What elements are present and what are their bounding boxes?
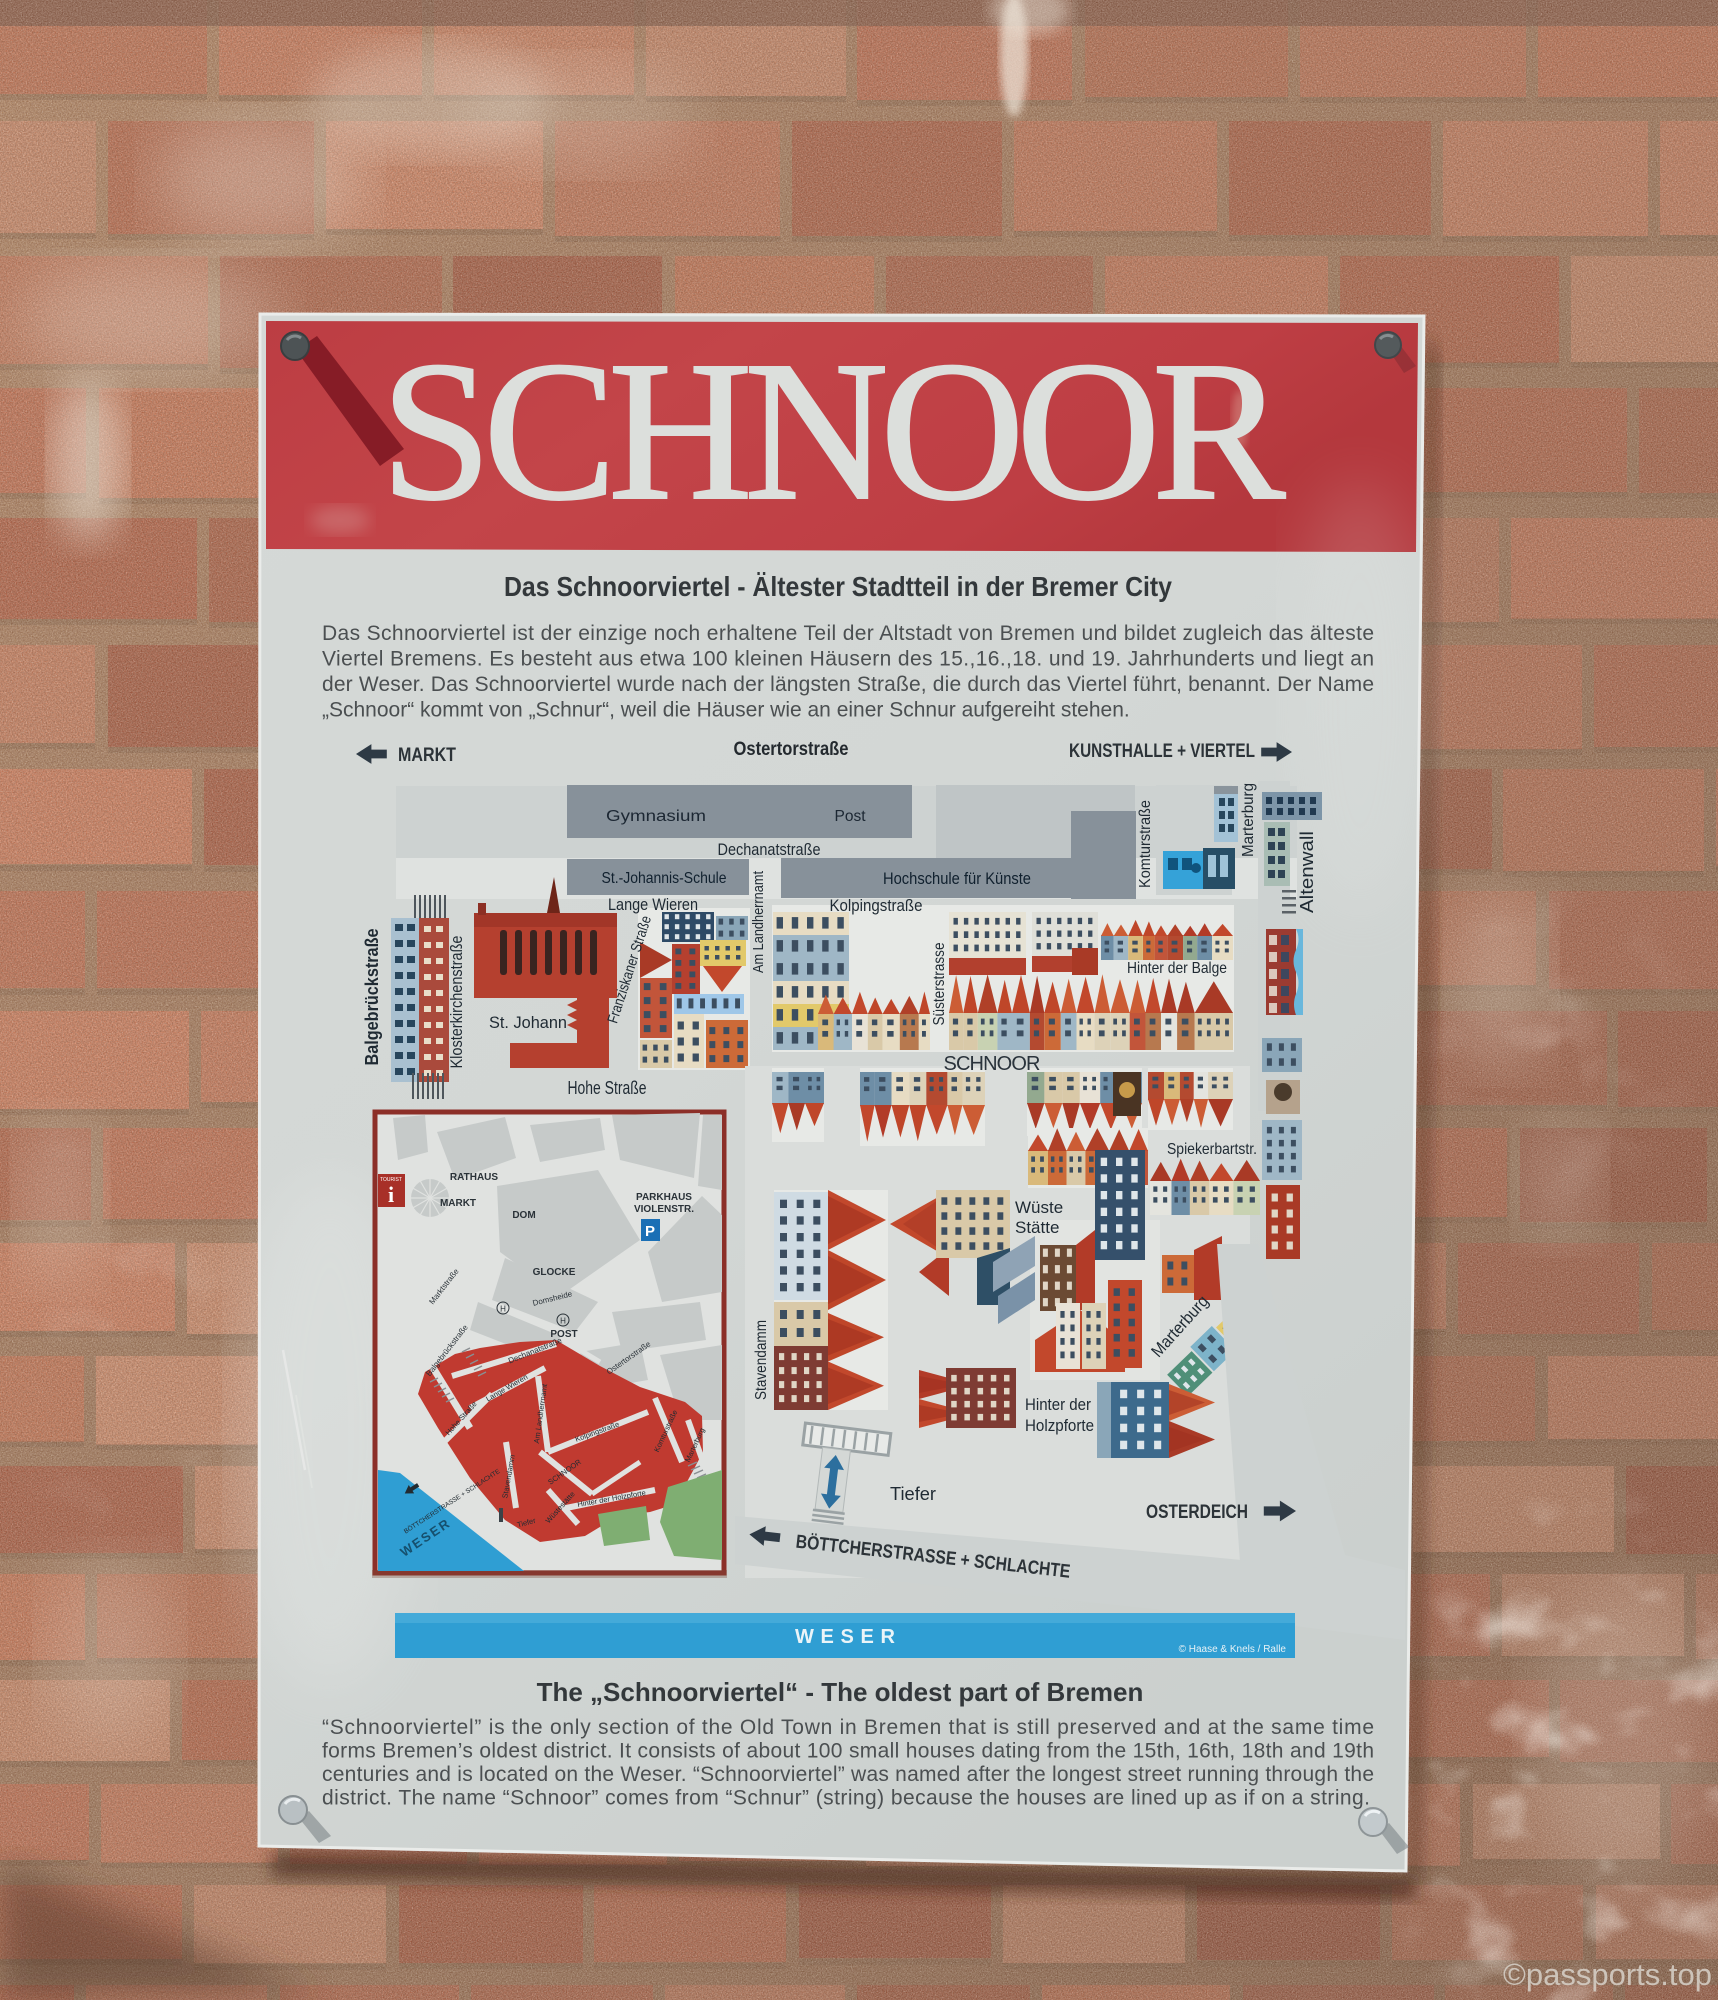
svg-text:DOM: DOM	[512, 1210, 535, 1221]
svg-text:Viertel Bremens. Es besteht au: Viertel Bremens. Es besteht aus etwa 100…	[322, 648, 1374, 671]
svg-text:Wüste: Wüste	[1015, 1198, 1063, 1217]
svg-text:Stavendamm: Stavendamm	[753, 1320, 770, 1400]
svg-text:Kolpingstraße: Kolpingstraße	[830, 896, 923, 915]
svg-text:© Haase & Knels / Ralle: © Haase & Knels / Ralle	[1179, 1644, 1287, 1655]
svg-text:„Schnoor“ kommt von „Schnur“,: „Schnoor“ kommt von „Schnur“, weil die H…	[322, 699, 1130, 722]
svg-text:Hinter der Balge: Hinter der Balge	[1127, 960, 1227, 977]
svg-text:Tiefer: Tiefer	[890, 1484, 936, 1504]
svg-text:Das Schnoorviertel - Ältester: Das Schnoorviertel - Ältester Stadtteil …	[504, 571, 1173, 602]
svg-text:Marterburg: Marterburg	[1240, 783, 1257, 857]
svg-text:Klosterkirchenstraße: Klosterkirchenstraße	[447, 936, 466, 1069]
svg-text:district. The name “Schnoor” c: district. The name “Schnoor” comes from …	[322, 1787, 1370, 1810]
svg-text:Süsterstrasse: Süsterstrasse	[931, 942, 948, 1025]
svg-text:Altenwall: Altenwall	[1297, 831, 1317, 913]
svg-text:Post: Post	[834, 808, 866, 825]
svg-text:Hohe Straße: Hohe Straße	[568, 1078, 647, 1098]
svg-text:St.-Johannis-Schule: St.-Johannis-Schule	[602, 870, 727, 887]
svg-text:Hochschule für Künste: Hochschule für Künste	[883, 870, 1031, 888]
svg-text:der Weser. Das Schnoorviertel: der Weser. Das Schnoorviertel wurde nach…	[322, 673, 1374, 696]
svg-text:P: P	[645, 1223, 655, 1240]
svg-text:Stätte: Stätte	[1015, 1218, 1059, 1237]
svg-text:©passports.top: ©passports.top	[1503, 1957, 1712, 1992]
svg-text:Am Landherrnamt: Am Landherrnamt	[750, 870, 767, 973]
svg-text:Dechanatstraße: Dechanatstraße	[718, 840, 821, 859]
svg-text:The „Schnoorviertel“ - The old: The „Schnoorviertel“ - The oldest part o…	[537, 1677, 1144, 1707]
svg-text:RATHAUS: RATHAUS	[450, 1172, 498, 1183]
svg-text:OSTERDEICH: OSTERDEICH	[1146, 1502, 1248, 1523]
svg-text:Lange Wieren: Lange Wieren	[608, 895, 698, 914]
svg-text:“Schnoorviertel” is the only s: “Schnoorviertel” is the only section of …	[322, 1716, 1374, 1739]
svg-text:Komturstraße: Komturstraße	[1137, 800, 1154, 888]
svg-text:MARKT: MARKT	[440, 1198, 476, 1209]
svg-text:KUNSTHALLE + VIERTEL: KUNSTHALLE + VIERTEL	[1069, 741, 1255, 762]
svg-text:Holzpforte: Holzpforte	[1025, 1416, 1094, 1435]
svg-text:SCHNOOR: SCHNOOR	[381, 321, 1287, 542]
svg-text:i: i	[388, 1182, 394, 1207]
svg-text:VIOLENSTR.: VIOLENSTR.	[634, 1204, 694, 1215]
svg-text:Gymnasium: Gymnasium	[606, 808, 706, 825]
svg-text:Ostertorstraße: Ostertorstraße	[734, 739, 849, 760]
svg-text:Das Schnoorviertel ist der ein: Das Schnoorviertel ist der einzige noch …	[322, 622, 1374, 645]
svg-text:MARKT: MARKT	[398, 745, 456, 766]
svg-text:Hinter der: Hinter der	[1025, 1395, 1091, 1414]
svg-text:forms Bremen’s oldest district: forms Bremen’s oldest district. It consi…	[322, 1740, 1374, 1763]
svg-text:centuries and is located on th: centuries and is located on the Weser. “…	[322, 1763, 1374, 1786]
svg-text:Balgebrückstraße: Balgebrückstraße	[362, 929, 382, 1066]
svg-text:SCHNOOR: SCHNOOR	[944, 1053, 1041, 1075]
svg-text:PARKHAUS: PARKHAUS	[636, 1192, 692, 1203]
svg-text:WESER: WESER	[795, 1626, 896, 1648]
svg-text:GLOCKE: GLOCKE	[533, 1267, 576, 1278]
svg-text:Spiekerbartstr.: Spiekerbartstr.	[1167, 1141, 1257, 1158]
svg-text:St. Johann: St. Johann	[489, 1013, 567, 1032]
svg-text:H: H	[560, 1317, 566, 1326]
svg-text:H: H	[500, 1305, 506, 1314]
